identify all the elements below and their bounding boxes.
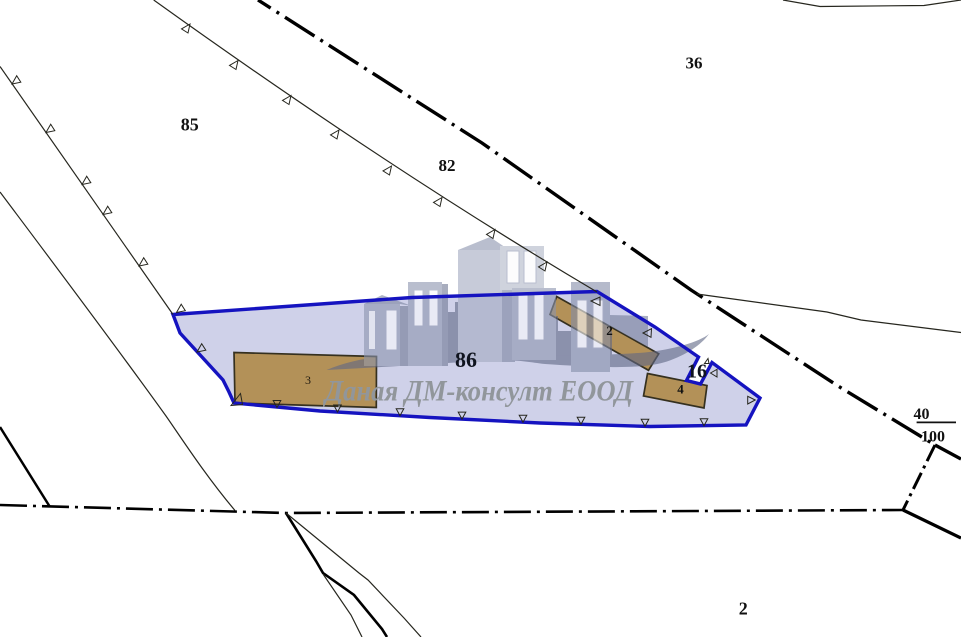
svg-text:Даная ДМ-консулт ЕООД: Даная ДМ-консулт ЕООД: [322, 375, 634, 408]
svg-text:85: 85: [181, 115, 199, 135]
svg-text:86: 86: [455, 347, 477, 372]
svg-text:2: 2: [739, 599, 748, 619]
svg-text:2: 2: [606, 323, 613, 338]
svg-text:3: 3: [305, 373, 311, 387]
svg-text:36: 36: [686, 54, 703, 73]
svg-text:100: 100: [921, 429, 945, 446]
svg-text:16: 16: [687, 361, 707, 383]
svg-text:40: 40: [914, 406, 930, 423]
svg-text:82: 82: [439, 156, 456, 175]
svg-text:4: 4: [677, 382, 684, 397]
